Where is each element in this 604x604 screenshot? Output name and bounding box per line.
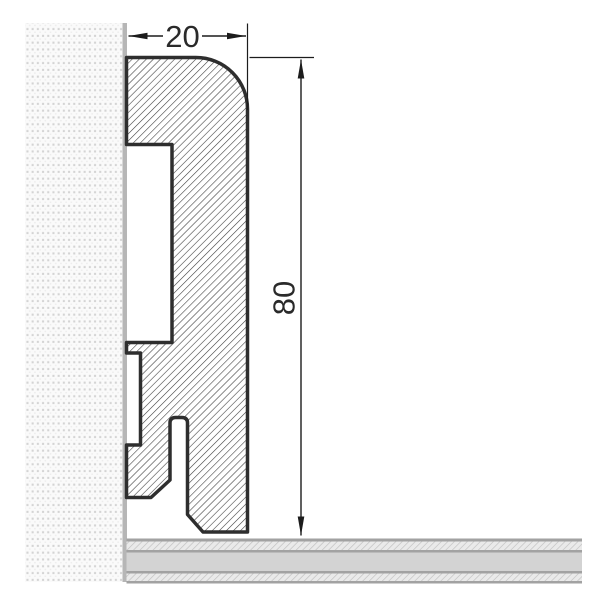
floor-top-border	[127, 539, 583, 542]
floor-mid-border-2	[127, 571, 583, 574]
arrowhead-down-icon	[298, 517, 305, 536]
arrowhead-up-icon	[298, 60, 305, 79]
dimension-height: 80	[250, 58, 315, 536]
floor-core-layer	[127, 553, 583, 572]
wall-texture	[25, 23, 123, 582]
dimension-height-label: 80	[267, 281, 302, 315]
skirting-profile	[127, 58, 248, 533]
arrowhead-right-icon	[227, 33, 246, 40]
arrowhead-left-icon	[129, 33, 148, 40]
wall-section	[25, 23, 127, 582]
dimension-width-label: 20	[165, 19, 199, 54]
floor-section	[127, 539, 583, 584]
floor-upper-screed-hatch	[127, 542, 583, 551]
floor-bottom-border	[127, 581, 583, 584]
floor-lower-screed-hatch	[127, 574, 583, 582]
skirting-profile-drawing: 20 80	[0, 0, 604, 604]
floor-mid-border-1	[127, 550, 583, 553]
profile-outline	[127, 58, 248, 533]
technical-drawing-canvas: 20 80	[0, 0, 604, 604]
